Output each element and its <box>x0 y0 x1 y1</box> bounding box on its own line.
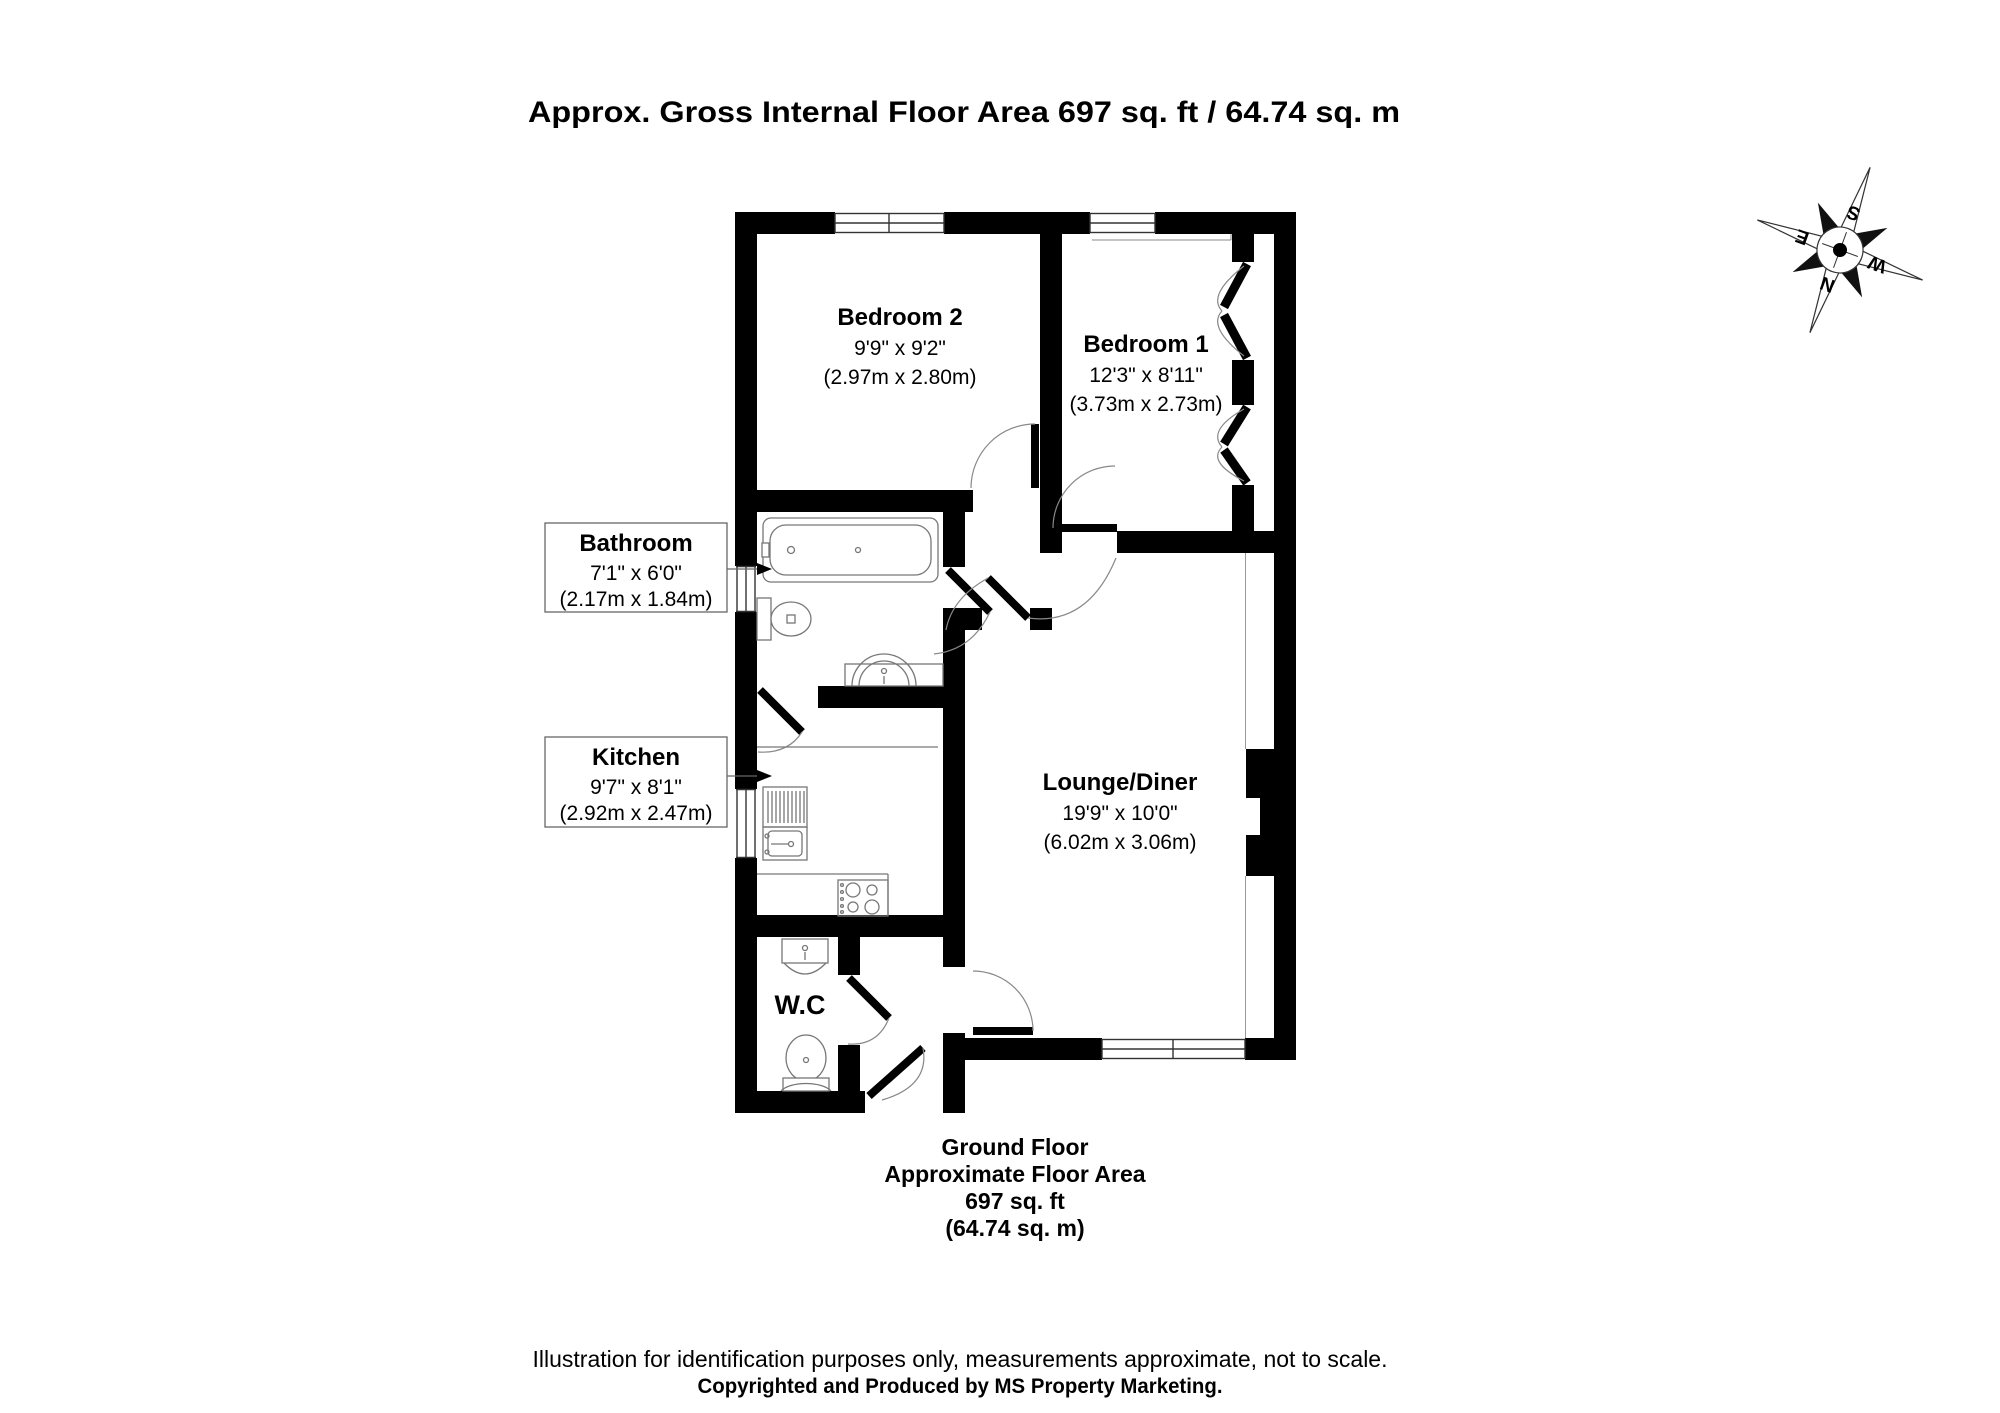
wall-segment <box>1232 360 1254 405</box>
wall-segment <box>735 858 757 1113</box>
wall-segment <box>943 512 965 567</box>
wall-segment <box>735 915 943 937</box>
bedroom2-name: Bedroom 2 <box>837 304 962 331</box>
floorplan-drawing: Approx. Gross Internal Floor Area 697 sq… <box>0 0 2000 1413</box>
compass-label-s: S <box>1844 200 1863 224</box>
door-leaf-vestibule-lounge <box>973 1027 1033 1035</box>
compass-point-long <box>1855 250 1925 287</box>
hob-burner <box>846 883 860 897</box>
hob-knobs <box>841 884 844 914</box>
bay-window-leaf <box>1224 264 1247 307</box>
compass-point-long <box>1840 165 1877 235</box>
wall-segment <box>1155 212 1296 234</box>
sink-tap <box>789 842 794 847</box>
wall-segment <box>1117 531 1274 553</box>
footer-area-m: (64.74 sq. m) <box>945 1215 1084 1241</box>
wall-segment <box>735 234 757 566</box>
window-kitchen <box>735 789 757 858</box>
hob-icon <box>838 880 888 916</box>
wall-segment <box>943 630 965 967</box>
compass-label-n: N <box>1818 272 1838 296</box>
lounge-name: Lounge/Diner <box>1043 769 1198 796</box>
door-arc-wc <box>848 1018 889 1044</box>
bathtub-tap <box>762 543 769 557</box>
wall-segment <box>757 490 973 512</box>
sink-tap <box>765 834 769 838</box>
footer-area-ft: 697 sq. ft <box>965 1188 1065 1214</box>
wc-basin-bowl <box>784 963 826 974</box>
door-arc-vestibule-lounge <box>973 971 1033 1031</box>
kitchen-dims-imperial: 9'7" x 8'1" <box>590 776 682 799</box>
door-leaf-hall-lounge <box>988 578 1028 618</box>
floorplan-page: Approx. Gross Internal Floor Area 697 sq… <box>0 0 2000 1413</box>
wc-toilet-cistern-icon <box>783 1078 829 1091</box>
door-arc-bedroom2 <box>971 424 1035 488</box>
bedroom1-dims-imperial: 12'3" x 8'11" <box>1089 364 1203 387</box>
bathtub-icon <box>763 518 938 582</box>
bay-window-leaf <box>1224 450 1247 483</box>
bathroom-dims-metric: (2.17m x 1.84m) <box>560 588 713 611</box>
door-leaf-bedroom1 <box>1053 524 1117 532</box>
basin-tap <box>882 669 887 674</box>
toilet-cistern-icon <box>757 598 771 640</box>
footer-area-label: Approximate Floor Area <box>884 1161 1145 1187</box>
footer-floor: Ground Floor <box>942 1134 1089 1160</box>
wall-segment <box>818 686 965 708</box>
door-leaf-bedroom2 <box>1031 424 1039 488</box>
wall-segment <box>1232 485 1254 531</box>
window-bedroom2-top <box>835 213 944 233</box>
wall-segment <box>838 937 860 975</box>
bay-window-leaf <box>1224 407 1247 444</box>
wall-segment <box>1245 1038 1296 1060</box>
bathroom-fixtures <box>757 518 943 686</box>
chimney-recess <box>1246 798 1260 835</box>
door-arc-kitchen <box>758 732 802 752</box>
bedroom2-dims-imperial: 9'9" x 9'2" <box>854 337 946 360</box>
door-leaf-wc <box>849 978 889 1018</box>
bathroom-dims-imperial: 7'1" x 6'0" <box>590 562 682 585</box>
door-leaf-front <box>869 1048 923 1096</box>
door-arc-bedroom1 <box>1053 466 1115 528</box>
lounge-dims-metric: (6.02m x 3.06m) <box>1044 831 1197 854</box>
toilet-bowl-icon <box>771 602 811 636</box>
wall-segment <box>735 612 757 789</box>
bedroom1-dims-metric: (3.73m x 2.73m) <box>1070 393 1223 416</box>
walls <box>735 212 1296 1113</box>
wall-segment <box>943 1033 965 1113</box>
page-title: Approx. Gross Internal Floor Area 697 sq… <box>528 96 1400 129</box>
hob-burner <box>848 902 858 912</box>
compass-rose-icon: N S E W <box>1727 137 1953 363</box>
wall-segment <box>1274 234 1296 1060</box>
wall-segment <box>1040 234 1062 553</box>
lounge-dims-imperial: 19'9" x 10'0" <box>1062 802 1177 825</box>
wall-segment <box>735 1091 865 1113</box>
wc-name: W.C <box>775 990 826 1020</box>
wall-segment <box>1232 234 1254 262</box>
window-lounge-bottom <box>1102 1039 1245 1059</box>
door-leaf-kitchen <box>760 690 802 732</box>
wall-segment <box>944 212 1090 234</box>
kitchen-fixtures <box>757 747 938 916</box>
disclaimer-line2: Copyrighted and Produced by MS Property … <box>698 1375 1223 1398</box>
bathroom-name: Bathroom <box>579 530 692 557</box>
wall-segment <box>735 212 835 234</box>
disclaimer-line1: Illustration for identification purposes… <box>533 1346 1388 1372</box>
sink-tap <box>765 850 769 854</box>
drainer-hatch <box>768 791 804 823</box>
kitchen-name: Kitchen <box>592 744 680 771</box>
window-bathroom <box>735 566 757 612</box>
bedroom1-name: Bedroom 1 <box>1083 331 1208 358</box>
wall-segment <box>965 1038 1102 1060</box>
compass-point-long <box>1755 213 1825 250</box>
hob-burner <box>865 900 879 914</box>
bedroom2-dims-metric: (2.97m x 2.80m) <box>824 366 977 389</box>
hob-burner <box>867 885 877 895</box>
kitchen-leader-arrow-icon <box>757 770 772 782</box>
bay-window-leaf <box>1224 315 1247 358</box>
kitchen-dims-metric: (2.92m x 2.47m) <box>560 802 713 825</box>
